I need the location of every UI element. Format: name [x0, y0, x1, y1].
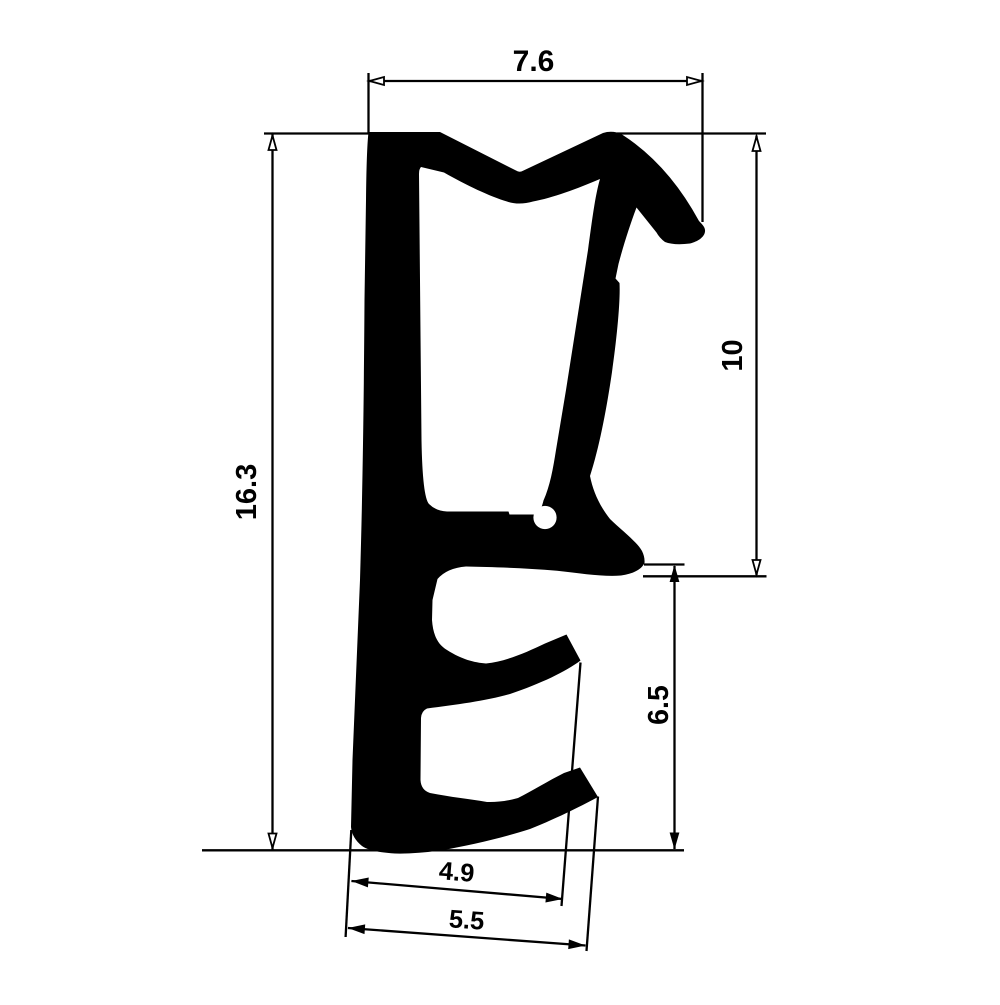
svg-text:16.3: 16.3	[231, 464, 263, 520]
svg-text:6.5: 6.5	[643, 685, 675, 725]
svg-text:10: 10	[717, 339, 749, 371]
svg-text:4.9: 4.9	[438, 857, 476, 888]
svg-text:5.5: 5.5	[448, 905, 485, 936]
svg-text:7.6: 7.6	[513, 45, 555, 78]
